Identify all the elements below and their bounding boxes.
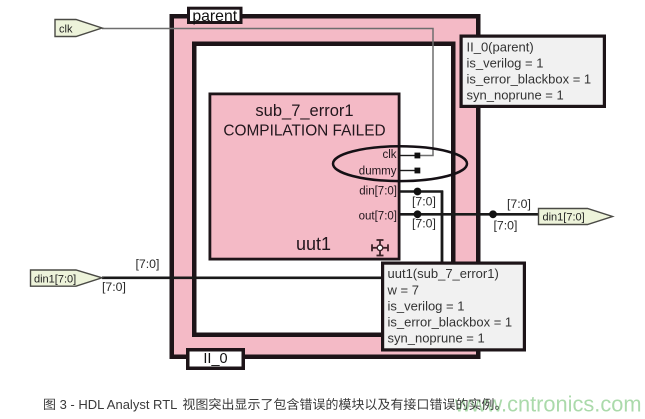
svg-text:[7:0]: [7:0] xyxy=(136,257,160,271)
svg-text:din1[7:0]: din1[7:0] xyxy=(543,212,585,224)
svg-text:[7:0]: [7:0] xyxy=(507,197,531,211)
svg-text:dummy: dummy xyxy=(359,165,397,177)
svg-text:is_verilog = 1: is_verilog = 1 xyxy=(467,56,544,71)
svg-text:is_verilog = 1: is_verilog = 1 xyxy=(388,298,465,313)
svg-text:[7:0]: [7:0] xyxy=(412,217,436,231)
svg-text:parent: parent xyxy=(192,8,237,25)
svg-text:uut1: uut1 xyxy=(296,234,331,254)
svg-text:syn_noprune = 1: syn_noprune = 1 xyxy=(467,88,564,103)
svg-text:syn_noprune = 1: syn_noprune = 1 xyxy=(388,330,485,345)
svg-text:clk: clk xyxy=(59,24,73,36)
svg-text:sub_7_error1: sub_7_error1 xyxy=(255,102,353,120)
svg-text:[7:0]: [7:0] xyxy=(102,280,126,294)
svg-text:uut1(sub_7_error1): uut1(sub_7_error1) xyxy=(388,266,499,281)
svg-text:out[7:0]: out[7:0] xyxy=(359,210,397,222)
svg-text:is_error_blackbox = 1: is_error_blackbox = 1 xyxy=(467,72,592,87)
svg-text:II_0(parent): II_0(parent) xyxy=(467,40,534,55)
svg-text:is_error_blackbox = 1: is_error_blackbox = 1 xyxy=(388,315,513,330)
svg-text:II_0: II_0 xyxy=(203,351,227,367)
svg-text:COMPILATION FAILED: COMPILATION FAILED xyxy=(223,123,385,140)
svg-text:clk: clk xyxy=(382,149,396,161)
svg-text:[7:0]: [7:0] xyxy=(412,195,436,209)
svg-text:3 - HDL Analyst RTL: 3 - HDL Analyst RTL xyxy=(60,397,178,412)
svg-text:w = 7: w = 7 xyxy=(387,282,419,297)
svg-text:www.cntronics.com: www.cntronics.com xyxy=(454,392,642,417)
svg-text:[7:0]: [7:0] xyxy=(494,219,518,233)
svg-text:din[7:0]: din[7:0] xyxy=(359,186,397,198)
svg-text:din1[7:0]: din1[7:0] xyxy=(34,273,76,285)
